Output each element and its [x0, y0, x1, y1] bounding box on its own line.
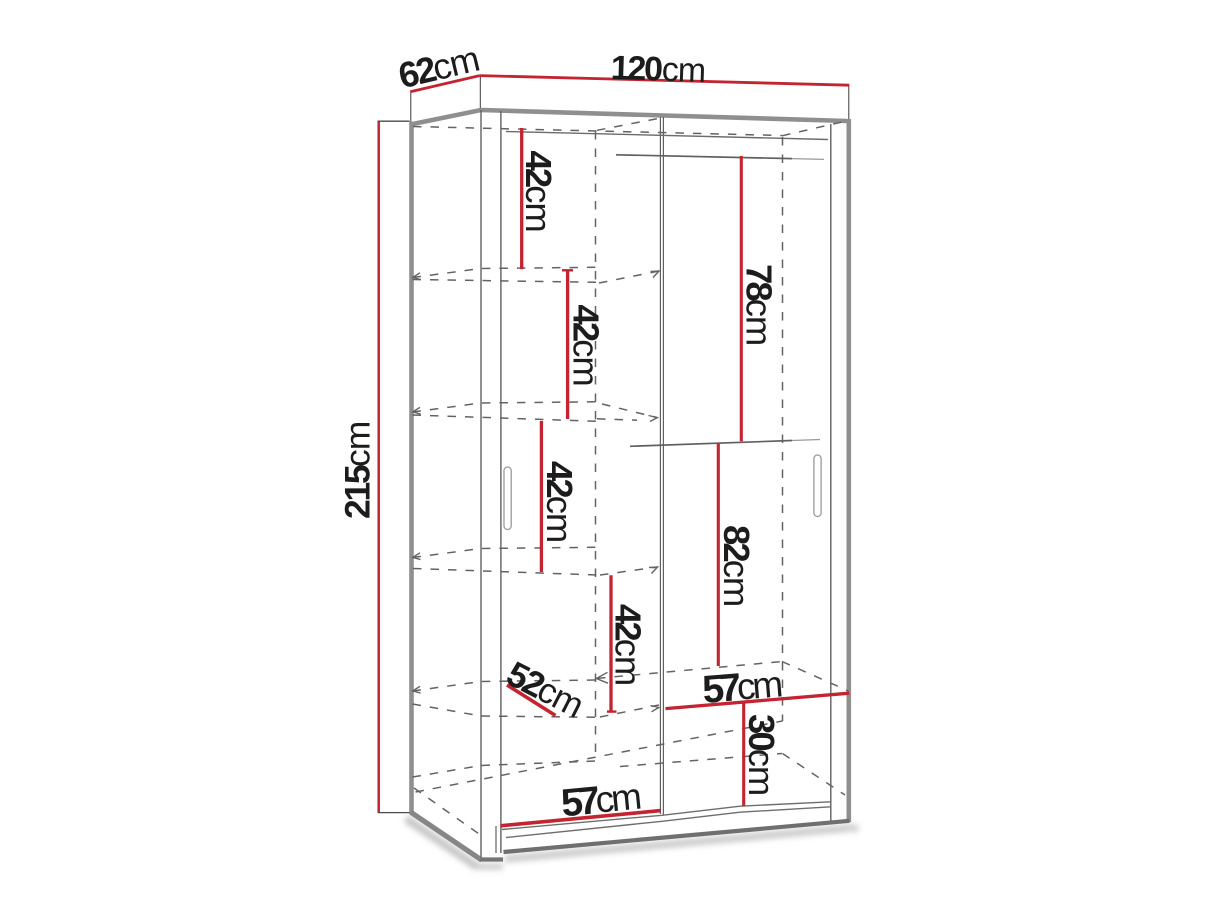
svg-text:120: 120	[610, 49, 662, 89]
svg-text:cm: cm	[539, 496, 580, 542]
svg-text:cm: cm	[518, 185, 559, 231]
svg-text:30: 30	[741, 714, 782, 750]
svg-text:42: 42	[518, 151, 559, 187]
svg-text:cm: cm	[716, 560, 757, 606]
svg-text:cm: cm	[739, 299, 780, 345]
svg-text:42: 42	[539, 461, 580, 497]
svg-text:cm: cm	[594, 776, 642, 821]
svg-text:cm: cm	[428, 38, 482, 88]
svg-text:215: 215	[338, 465, 378, 519]
svg-text:42: 42	[566, 305, 607, 341]
svg-text:cm: cm	[608, 639, 649, 685]
svg-text:cm: cm	[338, 422, 378, 467]
svg-text:82: 82	[716, 525, 757, 561]
svg-text:78: 78	[739, 264, 780, 301]
svg-text:cm: cm	[741, 749, 782, 795]
svg-text:cm: cm	[566, 339, 607, 385]
svg-text:42: 42	[608, 604, 649, 640]
svg-text:cm: cm	[735, 663, 783, 707]
svg-text:cm: cm	[661, 51, 706, 90]
